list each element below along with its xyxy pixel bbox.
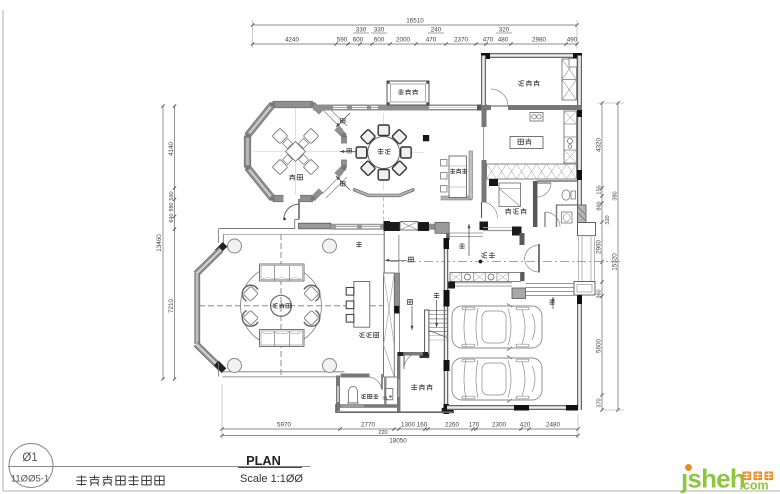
svg-text:18050: 18050 <box>389 438 407 445</box>
svg-text:.com: .com <box>740 479 769 493</box>
svg-text:490: 490 <box>567 37 578 44</box>
svg-text:320: 320 <box>605 215 611 224</box>
svg-text:Scale 1:1ØØ: Scale 1:1ØØ <box>240 473 303 485</box>
svg-text:420: 420 <box>520 422 531 429</box>
svg-text:590: 590 <box>337 37 348 44</box>
svg-text:5970: 5970 <box>277 422 292 429</box>
svg-text:11ØØ5-1: 11ØØ5-1 <box>11 474 49 485</box>
svg-text:Ø1: Ø1 <box>22 452 37 464</box>
svg-text:1300: 1300 <box>401 422 416 429</box>
svg-text:330: 330 <box>356 27 367 34</box>
svg-text:160: 160 <box>417 422 428 429</box>
svg-text:220: 220 <box>378 430 387 436</box>
svg-text:600: 600 <box>353 37 364 44</box>
svg-text:2480: 2480 <box>546 422 561 429</box>
svg-text:320: 320 <box>499 27 510 34</box>
svg-text:370: 370 <box>596 398 602 407</box>
svg-text:380: 380 <box>612 191 618 200</box>
svg-text:330: 330 <box>374 27 385 34</box>
svg-text:2770: 2770 <box>361 422 376 429</box>
svg-text:360: 360 <box>596 289 602 298</box>
svg-text:640: 640 <box>169 213 175 222</box>
svg-text:880: 880 <box>169 202 175 211</box>
svg-text:PLAN: PLAN <box>246 453 281 468</box>
svg-text:2960: 2960 <box>596 240 603 255</box>
svg-text:01: 01 <box>383 396 389 402</box>
svg-text:480: 480 <box>498 37 509 44</box>
svg-text:2260: 2260 <box>445 422 460 429</box>
svg-text:470: 470 <box>483 37 494 44</box>
svg-text:16510: 16510 <box>406 18 424 25</box>
svg-text:2980: 2980 <box>532 37 547 44</box>
svg-text:4240: 4240 <box>285 37 300 44</box>
svg-text:590: 590 <box>169 191 175 200</box>
svg-text:150: 150 <box>596 185 602 194</box>
svg-text:860: 860 <box>596 201 602 210</box>
svg-text:5600: 5600 <box>596 339 603 354</box>
svg-text:4320: 4320 <box>596 138 603 153</box>
svg-text:170: 170 <box>469 422 480 429</box>
svg-text:2300: 2300 <box>492 422 507 429</box>
svg-text:2000: 2000 <box>396 37 411 44</box>
svg-text:240: 240 <box>431 27 442 34</box>
svg-text:7210: 7210 <box>168 299 175 314</box>
svg-text:4140: 4140 <box>168 142 175 157</box>
svg-text:470: 470 <box>426 37 437 44</box>
svg-text:600: 600 <box>374 37 385 44</box>
svg-text:13460: 13460 <box>156 234 163 252</box>
svg-text:2370: 2370 <box>454 37 469 44</box>
